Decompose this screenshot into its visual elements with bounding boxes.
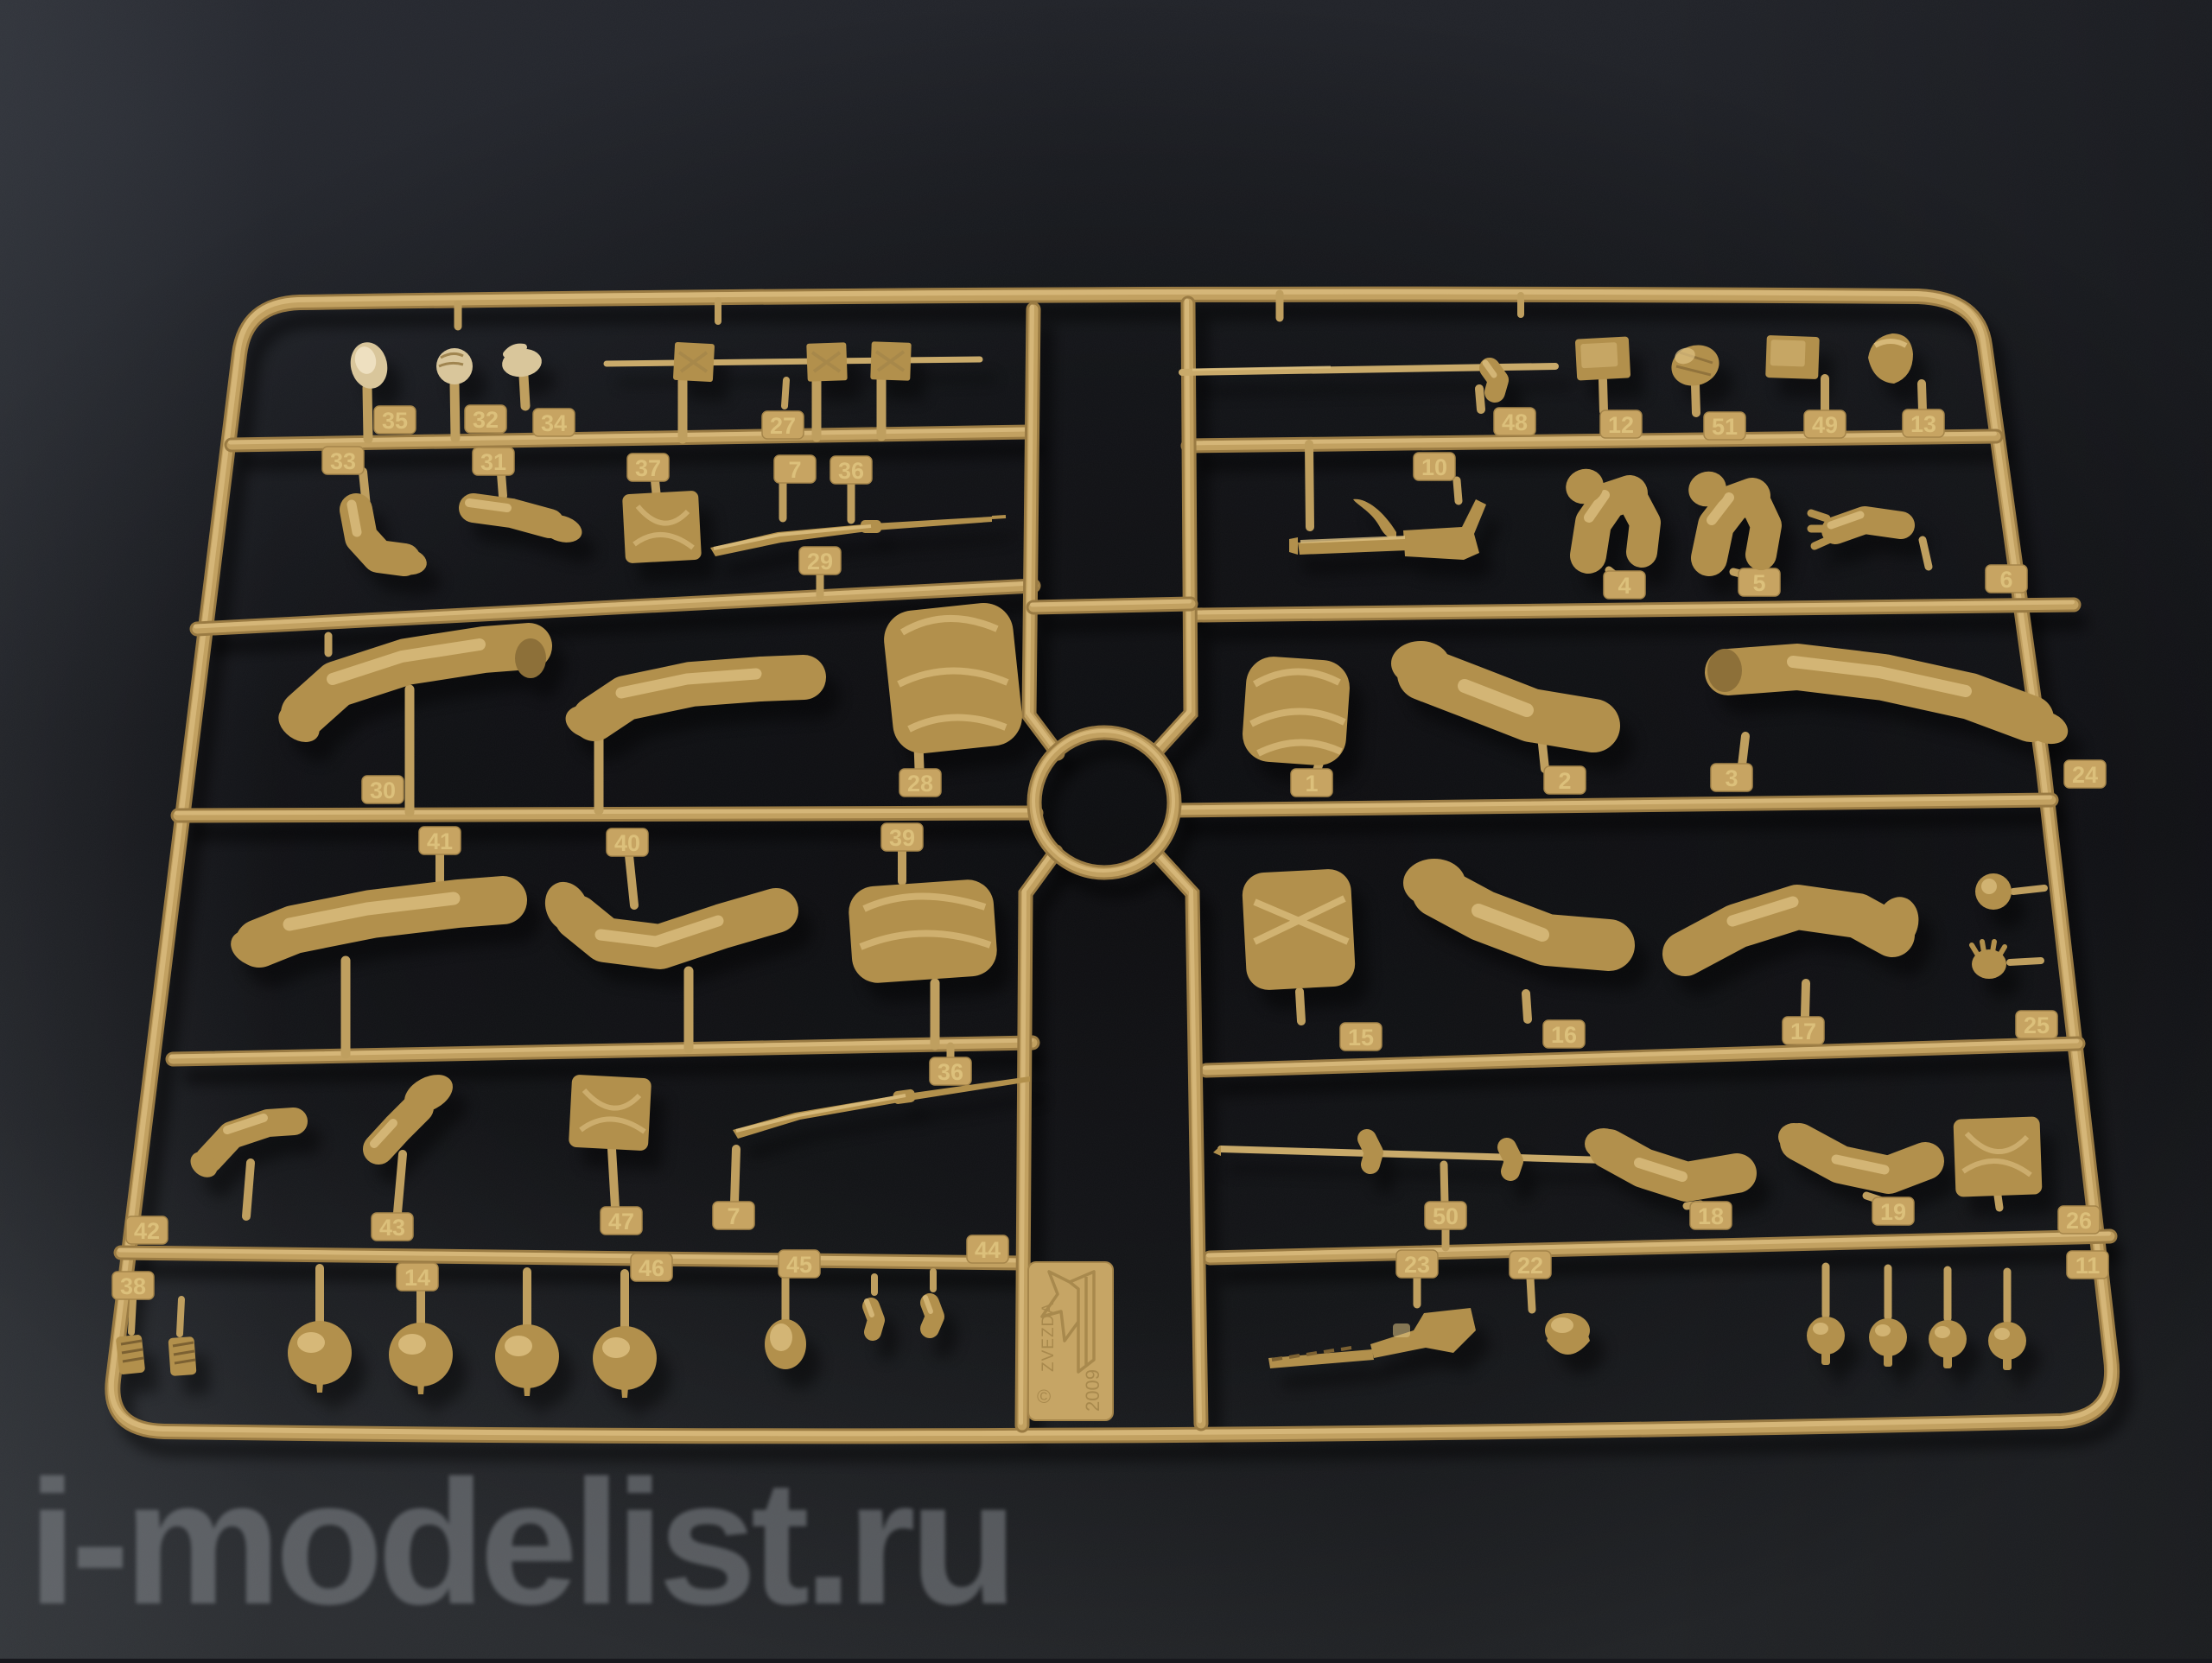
svg-text:37: 37 — [635, 455, 661, 481]
svg-text:19: 19 — [1880, 1199, 1906, 1225]
svg-text:6: 6 — [1999, 567, 2012, 593]
svg-text:11: 11 — [2075, 1253, 2101, 1279]
svg-text:43: 43 — [379, 1215, 405, 1241]
svg-text:©: © — [1037, 1386, 1051, 1407]
svg-text:44: 44 — [975, 1237, 1001, 1263]
svg-text:22: 22 — [1517, 1253, 1543, 1279]
svg-text:28: 28 — [907, 771, 933, 797]
svg-text:49: 49 — [1812, 412, 1838, 438]
svg-text:18: 18 — [1698, 1203, 1724, 1229]
svg-text:5: 5 — [1752, 570, 1765, 596]
svg-text:32: 32 — [473, 407, 499, 433]
svg-text:41: 41 — [427, 828, 453, 854]
svg-text:4: 4 — [1618, 573, 1630, 599]
svg-text:30: 30 — [370, 778, 396, 803]
svg-text:39: 39 — [889, 825, 915, 851]
svg-text:36: 36 — [838, 458, 864, 484]
svg-text:1: 1 — [1305, 771, 1318, 797]
svg-text:7: 7 — [788, 457, 801, 483]
svg-text:12: 12 — [1608, 412, 1634, 438]
svg-text:27: 27 — [770, 413, 796, 439]
svg-text:31: 31 — [480, 449, 506, 475]
svg-text:23: 23 — [1404, 1252, 1430, 1278]
svg-text:40: 40 — [614, 830, 640, 856]
svg-text:26: 26 — [2066, 1208, 2092, 1234]
svg-text:16: 16 — [1551, 1022, 1577, 1048]
svg-text:2: 2 — [1558, 768, 1571, 794]
svg-text:51: 51 — [1712, 414, 1738, 440]
svg-text:13: 13 — [1910, 411, 1936, 437]
svg-text:34: 34 — [541, 410, 567, 436]
svg-text:15: 15 — [1348, 1025, 1374, 1050]
svg-text:47: 47 — [608, 1209, 634, 1235]
svg-text:29: 29 — [807, 549, 833, 574]
svg-text:3: 3 — [1725, 765, 1738, 791]
svg-text:42: 42 — [134, 1218, 160, 1244]
svg-text:24: 24 — [2072, 762, 2098, 788]
svg-text:i-modelist.ru: i-modelist.ru — [28, 1444, 1012, 1641]
svg-text:ZVEZDA: ZVEZDA — [1039, 1302, 1058, 1372]
svg-text:35: 35 — [382, 408, 408, 434]
svg-text:48: 48 — [1502, 409, 1528, 435]
svg-text:25: 25 — [2024, 1012, 2050, 1038]
svg-text:2009: 2009 — [1082, 1369, 1103, 1412]
svg-text:17: 17 — [1790, 1019, 1816, 1044]
svg-text:45: 45 — [786, 1252, 812, 1278]
svg-text:10: 10 — [1421, 454, 1447, 480]
svg-text:50: 50 — [1433, 1203, 1459, 1229]
svg-text:36: 36 — [938, 1059, 963, 1085]
svg-text:46: 46 — [639, 1255, 664, 1281]
svg-text:14: 14 — [404, 1265, 430, 1291]
svg-text:33: 33 — [330, 448, 356, 474]
svg-text:38: 38 — [120, 1273, 146, 1299]
svg-text:7: 7 — [727, 1203, 740, 1229]
